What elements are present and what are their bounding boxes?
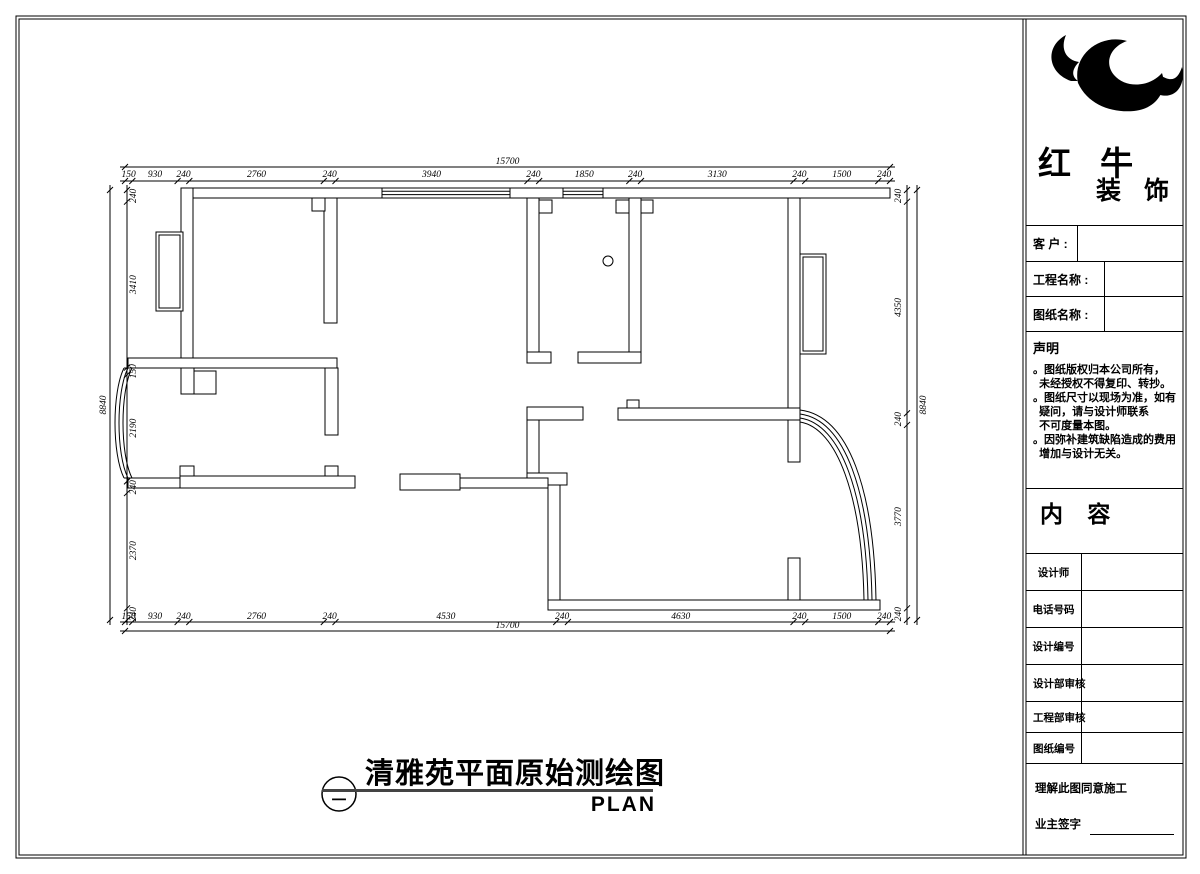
row-design-no: 设计编号	[1026, 627, 1183, 664]
svg-text:240: 240	[129, 188, 139, 203]
floor-plan-walls	[128, 188, 890, 610]
row-designer: 设计师	[1026, 553, 1183, 590]
svg-text:240: 240	[526, 170, 541, 180]
window-top-2	[563, 188, 603, 198]
floor-plan-canvas: 1509302402760240394024018502403130240150…	[0, 0, 1200, 874]
content-label: 内 容	[1040, 495, 1119, 529]
statement-line: 未经授权不得复印、转抄。	[1033, 377, 1183, 391]
svg-text:2760: 2760	[247, 170, 266, 180]
svg-text:240: 240	[129, 607, 139, 622]
statement-line: 增加与设计无关。	[1033, 447, 1183, 461]
drawing-sheet: 1509302402760240394024018502403130240150…	[0, 0, 1200, 874]
svg-text:240: 240	[877, 612, 892, 622]
dimension-lines: 1509302402760240394024018502403130240150…	[99, 157, 929, 634]
field-row-customer: 客 户 :	[1026, 225, 1183, 261]
window-right-bay-box	[800, 254, 826, 354]
brand-suffix: 装 饰	[1096, 171, 1177, 207]
sheet-name-label: 图纸名称 :	[1026, 297, 1105, 331]
signature-section: 理解此图同意施工 业主签字	[1026, 763, 1183, 855]
title-block: 红 牛 装 饰 客 户 : 工程名称 : 图纸名称 : 声明 。图纸版权归本公司…	[1026, 19, 1183, 855]
svg-text:240: 240	[176, 612, 191, 622]
svg-text:2190: 2190	[129, 418, 139, 437]
svg-text:1850: 1850	[575, 170, 594, 180]
svg-text:240: 240	[894, 188, 904, 203]
svg-text:150: 150	[129, 364, 139, 379]
statement-line: 。图纸版权归本公司所有，	[1033, 363, 1183, 377]
window-left-bay-box	[156, 232, 183, 311]
phone-label: 电话号码	[1026, 591, 1082, 627]
field-row-project-name: 工程名称 :	[1026, 261, 1183, 296]
svg-text:4630: 4630	[671, 612, 690, 622]
floor-drain-symbol	[603, 256, 613, 266]
curved-bay-window-right	[800, 410, 876, 600]
company-logo: 红 牛 装 饰	[1026, 19, 1183, 225]
svg-text:8840: 8840	[919, 395, 929, 414]
drawing-title-group: 二 清雅苑平面原始测绘图 PLAN	[322, 756, 665, 816]
statement-title: 声明	[1033, 338, 1183, 357]
statement-line: 。因弥补建筑缺陷造成的费用	[1033, 433, 1183, 447]
statement-line: 疑问，请与设计师联系	[1033, 405, 1183, 419]
svg-text:150: 150	[122, 170, 137, 180]
windows	[115, 188, 876, 600]
svg-text:930: 930	[148, 170, 163, 180]
project-name-label: 工程名称 :	[1026, 262, 1105, 296]
svg-text:3410: 3410	[129, 275, 139, 295]
drawing-subtitle: PLAN	[591, 793, 656, 816]
owner-signature-label: 业主签字	[1035, 816, 1081, 832]
customer-label: 客 户 :	[1026, 226, 1078, 261]
svg-text:1500: 1500	[832, 612, 851, 622]
designer-label: 设计师	[1026, 554, 1082, 590]
statement-line: 不可度量本图。	[1033, 419, 1183, 433]
svg-text:240: 240	[628, 170, 643, 180]
design-no-label: 设计编号	[1026, 628, 1082, 664]
svg-text:930: 930	[148, 612, 163, 622]
sheet-border	[16, 16, 1186, 858]
svg-text:2760: 2760	[247, 612, 266, 622]
svg-text:240: 240	[894, 412, 904, 427]
svg-text:240: 240	[129, 480, 139, 495]
eng-dept-review-label: 工程部审核	[1026, 702, 1082, 732]
svg-text:15700: 15700	[496, 621, 520, 631]
svg-text:1500: 1500	[832, 170, 851, 180]
drawing-title: 清雅苑平面原始测绘图	[365, 756, 665, 790]
svg-text:8840: 8840	[99, 395, 109, 414]
svg-text:240: 240	[323, 612, 338, 622]
svg-text:240: 240	[323, 170, 338, 180]
field-row-sheet-name: 图纸名称 :	[1026, 296, 1183, 331]
row-phone: 电话号码	[1026, 590, 1183, 627]
svg-text:240: 240	[792, 612, 807, 622]
svg-text:240: 240	[792, 170, 807, 180]
sheet-no-label: 图纸编号	[1026, 733, 1082, 763]
design-dept-review-label: 设计部审核	[1026, 665, 1082, 701]
statement-line: 。图纸尺寸以现场为准，如有	[1033, 391, 1183, 405]
svg-text:240: 240	[555, 612, 570, 622]
svg-text:15700: 15700	[496, 157, 520, 167]
svg-text:3770: 3770	[894, 507, 904, 527]
svg-text:240: 240	[176, 170, 191, 180]
row-sheet-no: 图纸编号	[1026, 732, 1183, 763]
row-design-dept-review: 设计部审核	[1026, 664, 1183, 701]
svg-text:3940: 3940	[421, 170, 441, 180]
construction-consent-text: 理解此图同意施工	[1035, 780, 1127, 796]
svg-text:4530: 4530	[436, 612, 455, 622]
statement-section: 声明 。图纸版权归本公司所有， 未经授权不得复印、转抄。 。图纸尺寸以现场为准，…	[1026, 331, 1183, 488]
svg-text:2370: 2370	[129, 541, 139, 560]
svg-text:240: 240	[877, 170, 892, 180]
content-section: 内 容	[1026, 488, 1183, 553]
svg-text:3130: 3130	[707, 170, 727, 180]
signature-line	[1090, 834, 1174, 835]
row-eng-dept-review: 工程部审核	[1026, 701, 1183, 732]
window-top-1	[382, 188, 510, 198]
svg-text:4350: 4350	[894, 298, 904, 317]
svg-text:240: 240	[894, 607, 904, 622]
